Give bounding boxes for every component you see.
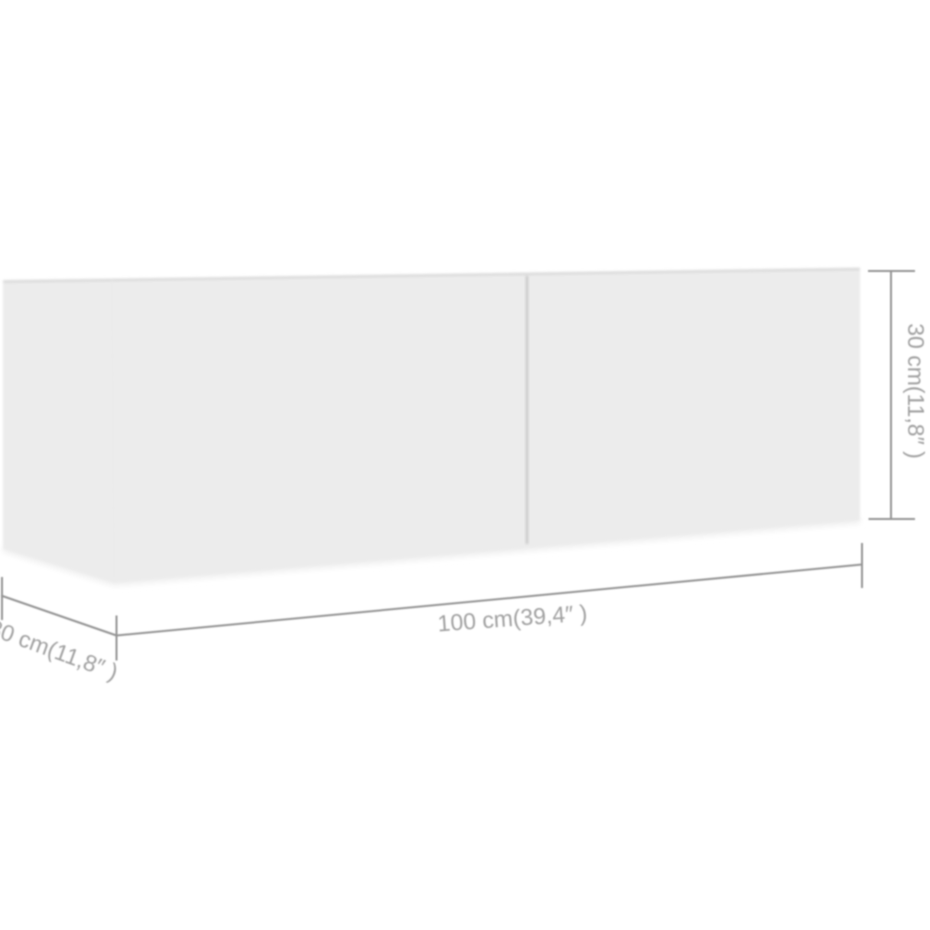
svg-text:30 cm(11,8″ ): 30 cm(11,8″ )	[903, 323, 929, 459]
